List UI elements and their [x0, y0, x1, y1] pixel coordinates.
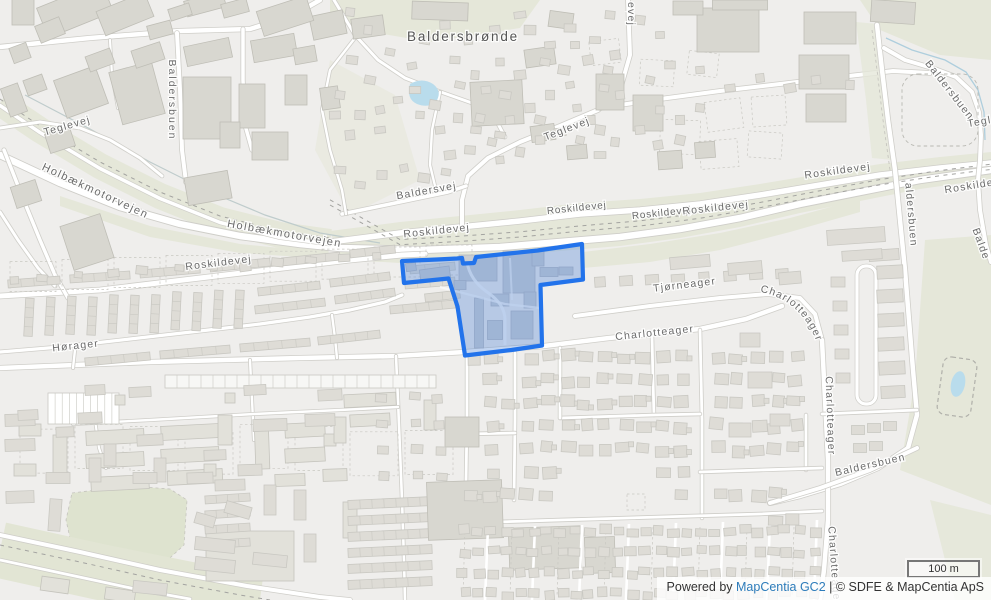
svg-text:Baldersbrønde: Baldersbrønde	[407, 29, 519, 44]
svg-text:evej: evej	[625, 2, 637, 26]
svg-text:Baldersbuen: Baldersbuen	[166, 60, 178, 141]
